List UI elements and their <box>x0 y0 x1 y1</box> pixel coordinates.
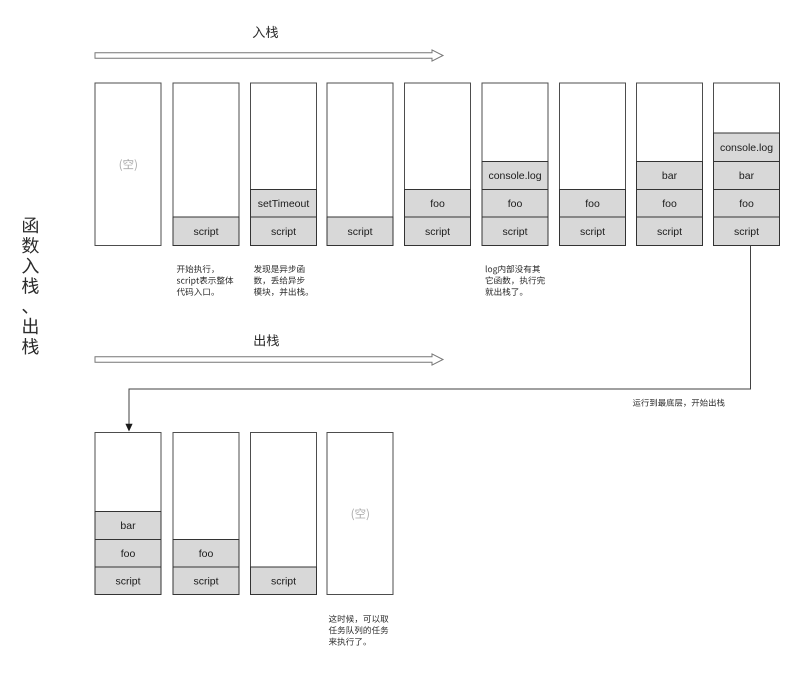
svg-text:script: script <box>580 226 605 238</box>
svg-text:script: script <box>347 226 372 238</box>
svg-text:script: script <box>657 226 682 238</box>
svg-text:foo: foo <box>662 198 677 210</box>
svg-text:script: script <box>193 575 218 587</box>
svg-text:script: script <box>271 575 296 587</box>
svg-text:foo: foo <box>508 198 523 210</box>
svg-text:script: script <box>425 226 450 238</box>
svg-text:script: script <box>271 226 296 238</box>
svg-text:script: script <box>115 575 140 587</box>
svg-text:script: script <box>502 226 527 238</box>
svg-text:console.log: console.log <box>720 142 773 154</box>
svg-text:foo: foo <box>199 548 214 560</box>
svg-text:script: script <box>193 226 218 238</box>
svg-text:bar: bar <box>120 520 136 532</box>
svg-text:bar: bar <box>739 170 755 182</box>
svg-text:foo: foo <box>585 198 600 210</box>
svg-text:setTimeout: setTimeout <box>258 198 310 210</box>
svg-text:foo: foo <box>121 548 136 560</box>
svg-text:foo: foo <box>739 198 754 210</box>
svg-text:bar: bar <box>662 170 678 182</box>
svg-text:foo: foo <box>430 198 445 210</box>
svg-text:console.log: console.log <box>488 170 541 182</box>
svg-text:script: script <box>734 226 759 238</box>
